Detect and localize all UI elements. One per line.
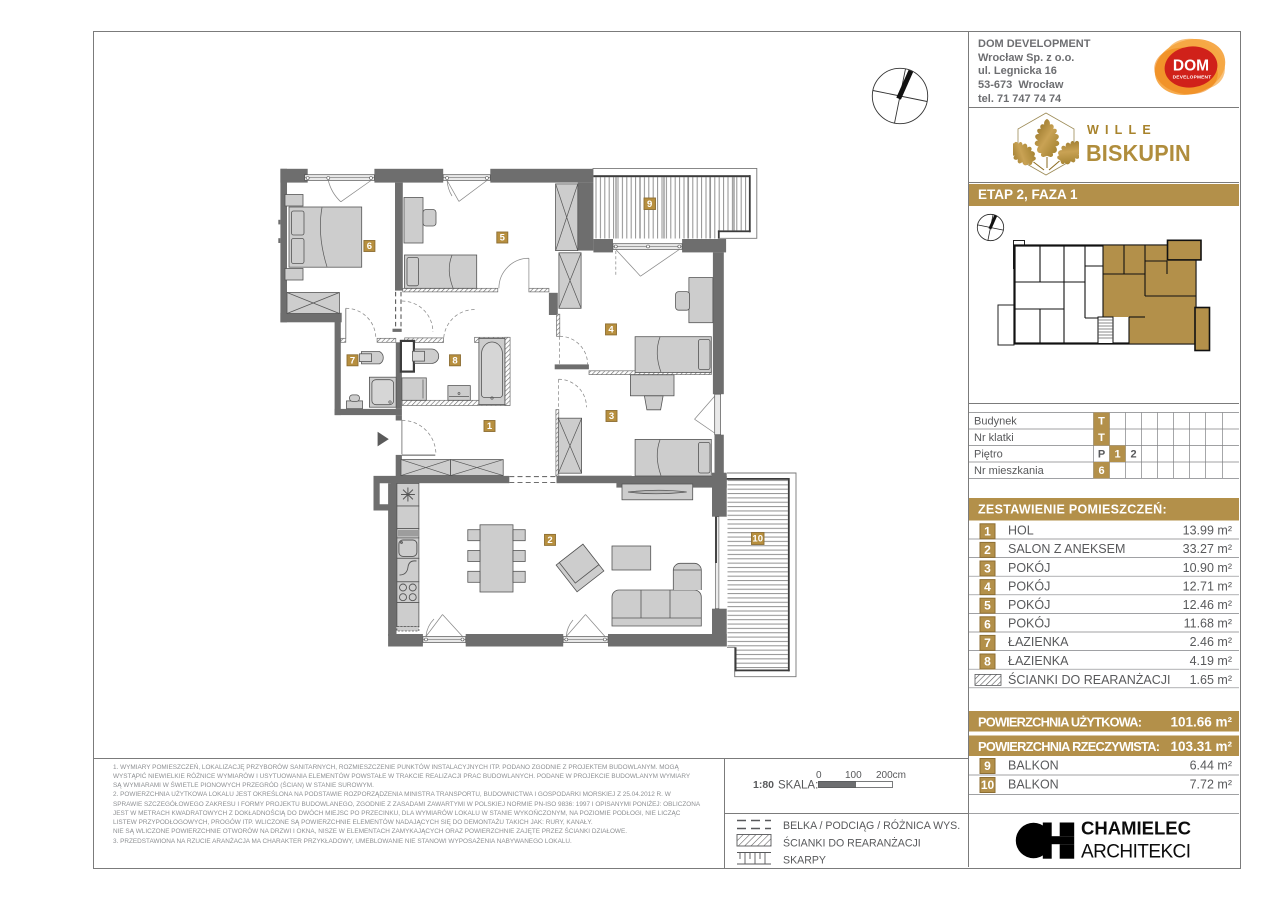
svg-text:2.46 m²: 2.46 m²: [1190, 635, 1232, 649]
svg-text:POKÓJ: POKÓJ: [1008, 597, 1050, 612]
svg-text:POWIERZCHNIA RZECZYWISTA:: POWIERZCHNIA RZECZYWISTA:: [978, 739, 1160, 754]
svg-text:SALON Z ANEKSEM: SALON Z ANEKSEM: [1008, 542, 1125, 556]
svg-text:7: 7: [984, 636, 991, 650]
svg-text:BALKON: BALKON: [1008, 778, 1059, 792]
svg-text:12.71 m²: 12.71 m²: [1183, 579, 1232, 593]
svg-text:8: 8: [984, 655, 991, 669]
svg-text:10.90 m²: 10.90 m²: [1183, 561, 1232, 575]
svg-text:33.27 m²: 33.27 m²: [1183, 542, 1232, 556]
svg-text:11.68 m²: 11.68 m²: [1184, 617, 1232, 631]
svg-text:POKÓJ: POKÓJ: [1008, 560, 1050, 575]
svg-text:12.46 m²: 12.46 m²: [1183, 598, 1232, 612]
svg-text:POWIERZCHNIA UŻYTKOWA:: POWIERZCHNIA UŻYTKOWA:: [978, 714, 1142, 729]
svg-text:T: T: [1098, 416, 1105, 428]
svg-text:ARCHITEKCI: ARCHITEKCI: [1081, 842, 1191, 863]
svg-text:4: 4: [984, 580, 991, 594]
svg-text:10: 10: [981, 778, 995, 792]
svg-text:1: 1: [984, 524, 991, 538]
svg-text:POKÓJ: POKÓJ: [1008, 578, 1050, 593]
svg-text:Nr klatki: Nr klatki: [974, 432, 1014, 444]
svg-text:DOM: DOM: [1173, 58, 1209, 75]
svg-text:5: 5: [500, 233, 506, 244]
svg-text:BALKON: BALKON: [1008, 759, 1059, 773]
svg-text:ŚCIANKI DO REARANŻACJI: ŚCIANKI DO REARANŻACJI: [1008, 672, 1171, 687]
svg-text:9: 9: [647, 199, 652, 210]
svg-text:1: 1: [1114, 449, 1120, 461]
svg-text:Nr mieszkania: Nr mieszkania: [974, 465, 1045, 477]
svg-text:1: 1: [487, 421, 493, 432]
svg-text:ŚCIANKI DO REARANŻACJI: ŚCIANKI DO REARANŻACJI: [783, 837, 921, 850]
svg-text:POKÓJ: POKÓJ: [1008, 616, 1050, 631]
svg-text:5: 5: [984, 599, 991, 613]
svg-text:8: 8: [452, 355, 457, 366]
svg-text:13.99 m²: 13.99 m²: [1183, 524, 1232, 538]
svg-text:4.19 m²: 4.19 m²: [1190, 654, 1232, 668]
svg-text:HOL: HOL: [1008, 524, 1034, 538]
svg-text:SKALA:: SKALA:: [778, 780, 818, 792]
svg-text:1:80: 1:80: [753, 779, 774, 791]
svg-text:Budynek: Budynek: [974, 416, 1017, 428]
svg-text:BELKA / PODCIĄG / RÓŻNICA WYS.: BELKA / PODCIĄG / RÓŻNICA WYS.: [783, 819, 960, 832]
svg-text:P: P: [1098, 449, 1105, 461]
svg-text:6: 6: [1098, 465, 1104, 477]
svg-text:10: 10: [752, 534, 763, 545]
svg-text:T: T: [1098, 432, 1105, 444]
svg-text:6: 6: [984, 617, 991, 631]
svg-text:ŁAZIENKA: ŁAZIENKA: [1008, 635, 1069, 649]
svg-text:3: 3: [609, 411, 614, 422]
svg-text:ŁAZIENKA: ŁAZIENKA: [1008, 654, 1069, 668]
svg-text:ZESTAWIENIE POMIESZCZEŃ:: ZESTAWIENIE POMIESZCZEŃ:: [978, 502, 1167, 517]
svg-text:6: 6: [367, 241, 372, 252]
svg-text:103.31 m²: 103.31 m²: [1170, 739, 1232, 754]
svg-text:100: 100: [845, 770, 862, 781]
svg-text:7: 7: [350, 355, 355, 366]
svg-text:Piętro: Piętro: [974, 449, 1003, 461]
svg-text:200cm: 200cm: [876, 770, 906, 781]
svg-text:7.72 m²: 7.72 m²: [1190, 778, 1232, 792]
svg-text:DEVELOPMENT: DEVELOPMENT: [1173, 75, 1212, 81]
svg-text:2: 2: [547, 535, 552, 546]
svg-text:6.44 m²: 6.44 m²: [1190, 759, 1232, 773]
svg-text:0: 0: [816, 770, 822, 781]
svg-text:3: 3: [984, 562, 991, 576]
svg-text:SKARPY: SKARPY: [783, 855, 826, 867]
svg-text:CHAMIELEC: CHAMIELEC: [1081, 818, 1191, 839]
svg-text:4: 4: [608, 324, 614, 335]
svg-text:2: 2: [984, 543, 991, 557]
svg-text:2: 2: [1130, 449, 1136, 461]
svg-text:1.65 m²: 1.65 m²: [1190, 673, 1232, 687]
svg-text:9: 9: [984, 759, 991, 773]
svg-text:101.66 m²: 101.66 m²: [1170, 715, 1232, 730]
